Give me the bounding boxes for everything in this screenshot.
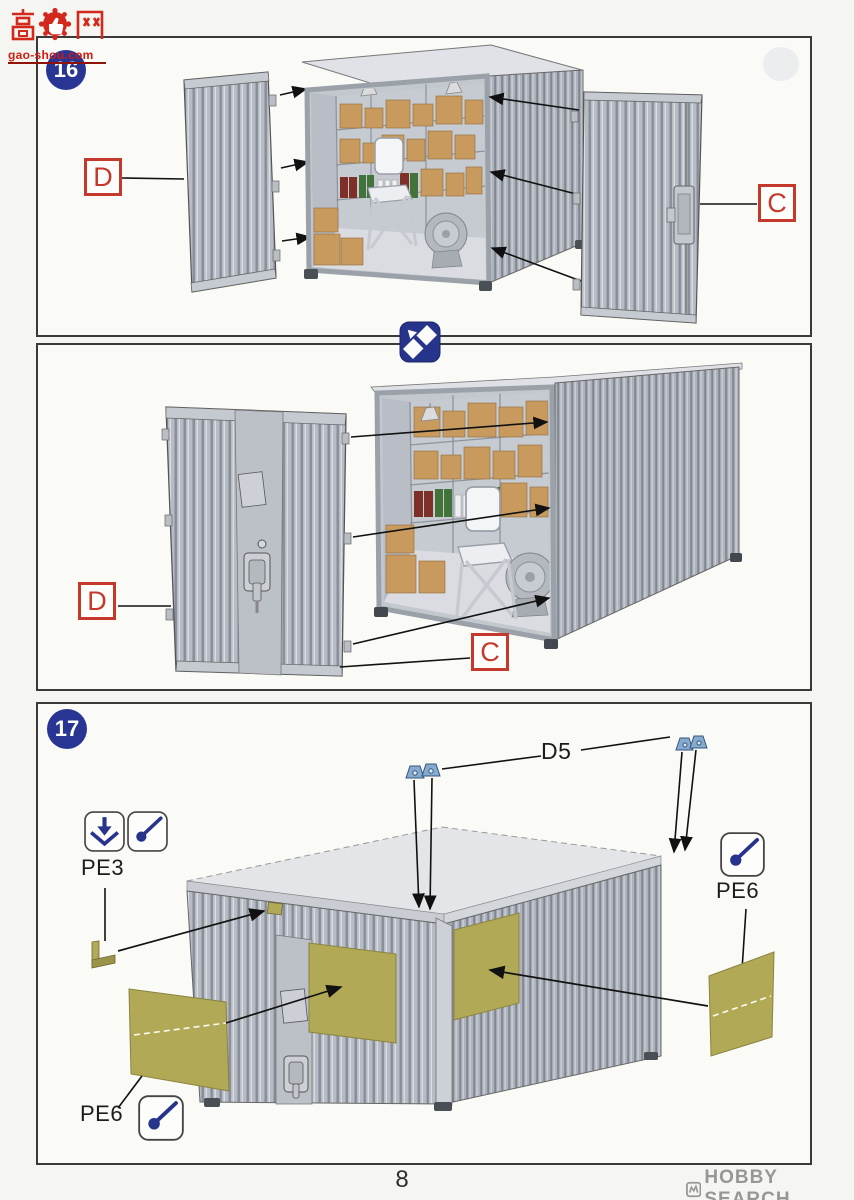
glue-icon	[720, 832, 765, 882]
part-label-pe6-left: PE6	[80, 1101, 123, 1127]
hobby-search-watermark: HOBBY SEARCH	[686, 1167, 854, 1200]
pe3-bracket-part	[92, 941, 115, 968]
double-door-part	[162, 407, 351, 676]
container-foot	[374, 607, 388, 617]
container-illustration	[187, 827, 661, 1111]
thumb-gear-logo	[39, 8, 71, 40]
label-d-leader-line	[122, 178, 184, 179]
container-foot	[479, 281, 492, 291]
door-label-plate	[280, 989, 307, 1023]
step16-view1-illustration	[38, 38, 810, 335]
step-17-number: 17	[55, 716, 79, 742]
pe6-plate-left	[129, 989, 229, 1091]
door-c-part	[571, 92, 702, 323]
door-label-plate	[238, 472, 266, 508]
print-bleed-ghost	[763, 47, 799, 81]
part-label-c-view2: C	[471, 633, 509, 671]
container-foot	[304, 269, 318, 279]
pe6-right-leader-line	[742, 909, 746, 970]
container-right-side	[489, 70, 583, 283]
step16-panel-bottom	[36, 343, 812, 691]
part-label-c-view1: C	[758, 184, 796, 222]
hobby-search-text: HOBBY SEARCH	[704, 1167, 854, 1200]
step-17-badge: 17	[47, 709, 87, 749]
container-illustration	[371, 363, 742, 649]
corner-post	[436, 918, 452, 1105]
container-foot	[544, 639, 558, 649]
instruction-page: 16 17 D C D C D5 PE3 PE6 PE6	[0, 0, 854, 1200]
rotate-view-icon	[399, 321, 441, 368]
door-d-part	[184, 72, 280, 292]
gaoshou-logo	[8, 6, 106, 42]
part-label-d-view2: D	[78, 582, 116, 620]
fold-pe-icon	[84, 811, 125, 857]
container-foot	[730, 553, 742, 562]
step16-view2-illustration	[38, 345, 810, 689]
part-label-pe3: PE3	[81, 855, 124, 881]
pe6-plate-right	[709, 952, 774, 1056]
hobby-search-icon	[686, 1181, 701, 1198]
gaoshou-watermark: 高手网 gao-sh	[8, 6, 106, 64]
pe6-panel-installed-right	[454, 913, 519, 1020]
part-label-d5: D5	[541, 738, 571, 765]
pe3-bracket-installed	[267, 902, 282, 915]
glue-icon	[127, 811, 168, 857]
door-handle	[284, 1056, 308, 1098]
glue-icon	[138, 1095, 184, 1146]
gaoshou-domain: gao-shou.com	[8, 48, 106, 64]
step16-panel-top	[36, 36, 812, 337]
container-illustration	[302, 45, 587, 291]
part-label-d-view1: D	[84, 158, 122, 196]
page-number: 8	[380, 1166, 424, 1194]
label-c-leader-line	[340, 658, 470, 667]
